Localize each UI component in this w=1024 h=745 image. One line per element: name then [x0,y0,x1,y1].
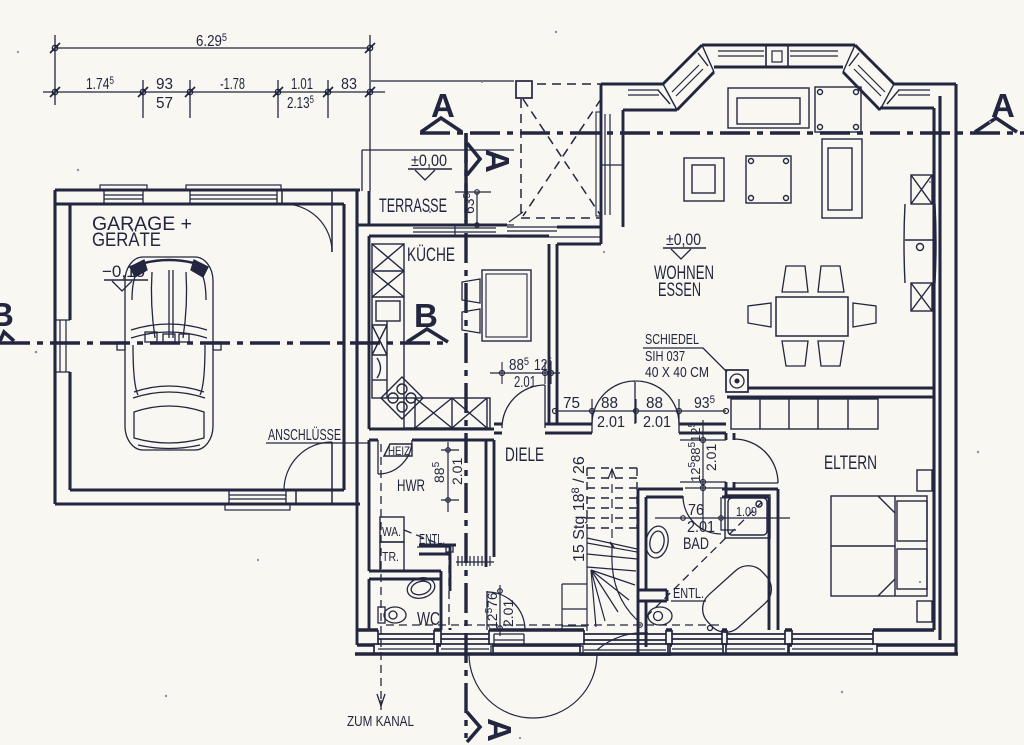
svg-text:40 X 40 CM: 40 X 40 CM [645,364,709,381]
svg-text:2.01: 2.01 [500,600,516,627]
svg-text:DIELE: DIELE [505,445,544,466]
svg-text:A: A [479,149,516,173]
svg-text:2.01: 2.01 [449,458,465,485]
svg-text:A: A [481,718,518,742]
svg-text:TR.: TR. [382,549,399,564]
svg-text:2.01: 2.01 [703,444,719,471]
svg-text:125885125: 125885125 [687,421,703,482]
svg-text:SIH 037: SIH 037 [645,348,685,365]
svg-text:A: A [991,87,1015,124]
svg-text:2.01: 2.01 [514,374,536,391]
svg-text:2.01: 2.01 [643,414,671,431]
svg-text:GERÄTE: GERÄTE [92,230,161,251]
svg-text:ZUM KANAL: ZUM KANAL [347,713,414,730]
svg-text:BAD: BAD [683,534,709,553]
svg-text:88: 88 [646,395,663,412]
svg-text:B: B [0,296,14,333]
svg-text:WA.: WA. [382,524,401,539]
svg-text:KÜCHE: KÜCHE [407,245,455,266]
svg-text:76: 76 [688,502,704,519]
svg-text:ENTL.: ENTL. [673,585,704,602]
svg-text:HEIZ: HEIZ [388,444,410,458]
svg-text:HWR: HWR [397,476,425,495]
svg-text:ANSCHLÜSSE: ANSCHLÜSSE [268,426,341,444]
svg-text:±0,00: ±0,00 [666,230,701,249]
svg-text:1.01: 1.01 [291,76,313,93]
svg-text:75: 75 [563,395,580,412]
svg-text:A: A [431,87,455,124]
svg-text:ELTERN: ELTERN [824,453,877,474]
svg-text:-1.78: -1.78 [220,76,245,93]
svg-text:83: 83 [341,76,357,93]
svg-text:88: 88 [601,395,618,412]
svg-text:SCHIEDEL: SCHIEDEL [645,331,699,348]
svg-text:1.09: 1.09 [736,504,757,519]
svg-text:±0,00: ±0,00 [411,151,447,170]
svg-text:WC: WC [417,609,440,629]
svg-text:ESSEN: ESSEN [658,280,701,301]
svg-text:57: 57 [156,95,173,112]
svg-text:B: B [414,297,438,334]
svg-text:15 Stg 188 / 26: 15 Stg 188 / 26 [570,456,588,562]
svg-text:−0,15: −0,15 [102,262,145,281]
svg-text:TERRASSE: TERRASSE [379,196,447,217]
svg-text:93: 93 [156,76,173,93]
svg-text:2.01: 2.01 [597,414,625,431]
